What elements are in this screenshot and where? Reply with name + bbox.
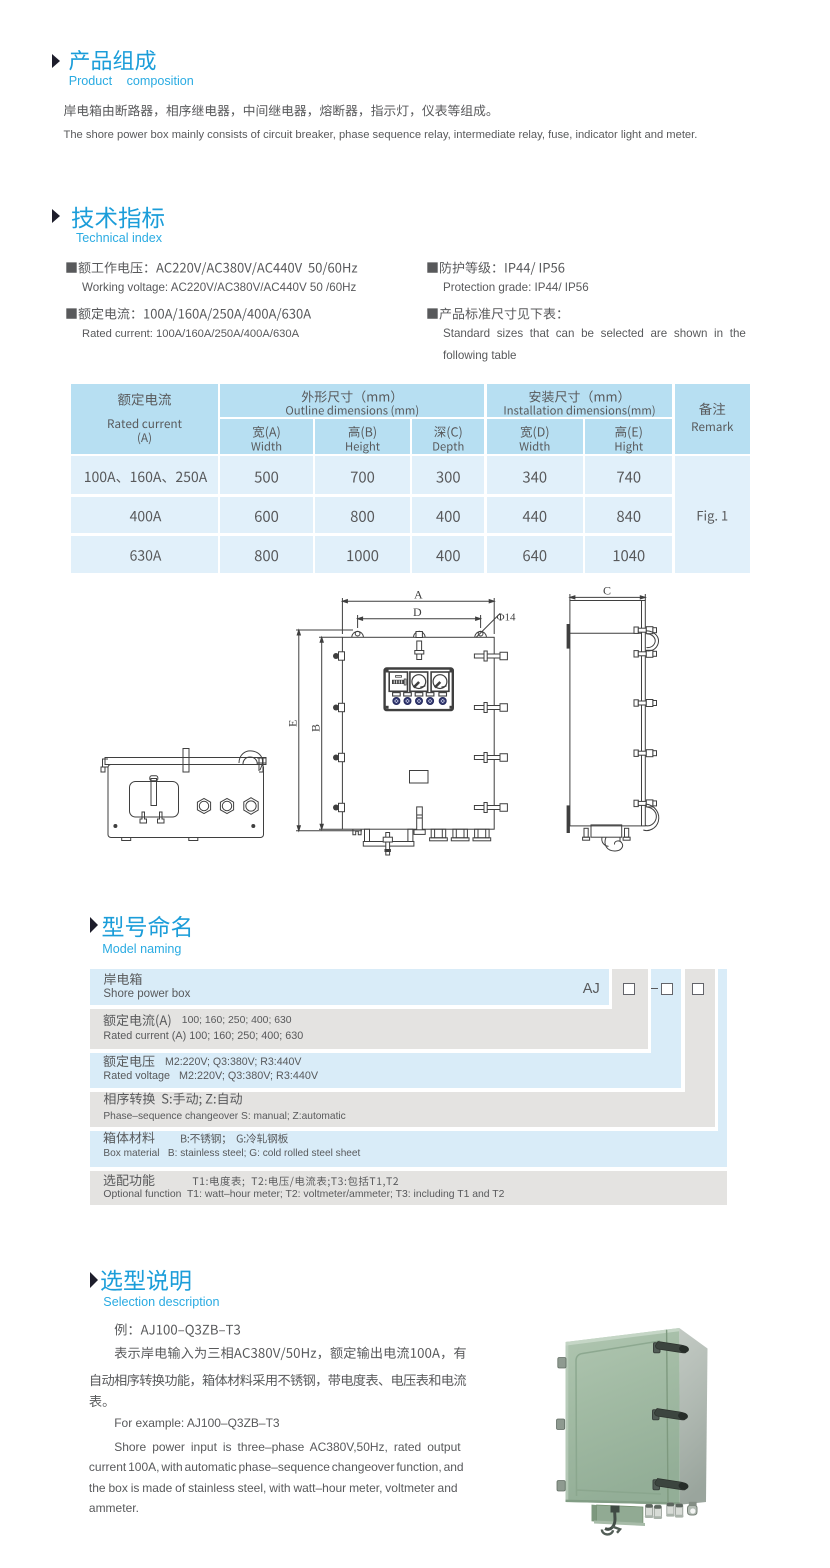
svg-text:Φ14: Φ14 (497, 612, 517, 624)
svg-text:E: E (286, 720, 300, 727)
svg-text:A: A (414, 588, 423, 602)
svg-text:B: B (309, 724, 323, 732)
svg-text:C: C (603, 584, 611, 598)
svg-text:D: D (413, 605, 422, 619)
